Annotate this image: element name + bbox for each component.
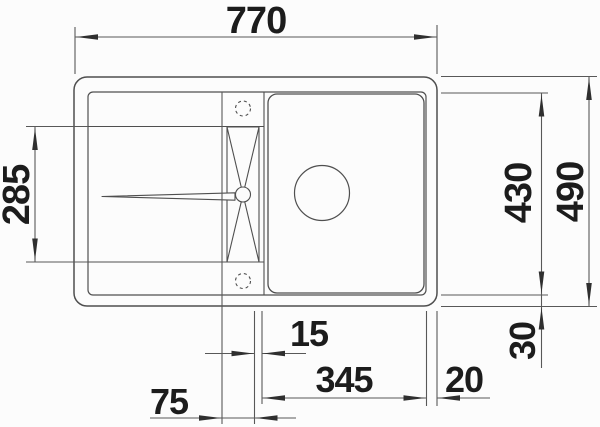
technical-drawing-canvas: 770 285 430 490 30 15 345 20 75 bbox=[0, 0, 600, 427]
dim-total-width-label: 770 bbox=[226, 0, 286, 42]
arrowhead-left bbox=[76, 34, 98, 40]
arrowhead-down bbox=[539, 272, 545, 294]
sink-body bbox=[74, 77, 437, 306]
divider-center-hole bbox=[236, 187, 251, 202]
dimension-linework bbox=[26, 25, 597, 424]
sink-outer-rim bbox=[74, 77, 437, 306]
sink-inner-edge bbox=[88, 92, 426, 295]
dim-side-edge-offset-label: 20 bbox=[445, 359, 483, 400]
arrowhead-right bbox=[404, 395, 426, 401]
sink-dimension-drawing: 770 285 430 490 30 15 345 20 75 bbox=[0, 0, 600, 427]
dim-divider-gap-label: 15 bbox=[290, 313, 329, 354]
dim-drainboard-depth-label: 285 bbox=[0, 164, 38, 225]
tap-hole-top bbox=[236, 101, 251, 116]
tap-hole-bottom bbox=[236, 274, 251, 289]
arrowhead-left bbox=[263, 351, 285, 357]
dim-rear-edge-offset-label: 30 bbox=[502, 322, 543, 360]
dimension-labels: 770 285 430 490 30 15 345 20 75 bbox=[0, 0, 592, 422]
arrowhead-left bbox=[256, 415, 278, 421]
dimension-tap-section-width bbox=[150, 92, 296, 424]
arrowhead-up bbox=[539, 95, 545, 117]
drain-groove bbox=[102, 193, 235, 200]
arrowhead-right bbox=[414, 34, 436, 40]
dim-tap-section-width-label: 75 bbox=[150, 381, 189, 422]
arrowhead-down bbox=[586, 283, 592, 305]
arrowhead-right bbox=[199, 415, 221, 421]
drain-circle bbox=[295, 166, 350, 221]
arrowhead-up bbox=[32, 128, 38, 150]
dim-bowl-section-width-label: 345 bbox=[315, 359, 373, 400]
arrowhead-up bbox=[586, 78, 592, 100]
arrowhead-left bbox=[263, 395, 285, 401]
arrowhead-down bbox=[32, 239, 38, 261]
dim-inner-depth-label: 430 bbox=[498, 163, 540, 223]
arrowhead-right bbox=[232, 351, 254, 357]
dim-total-depth-label: 490 bbox=[550, 162, 592, 222]
bowl-outline bbox=[268, 94, 424, 293]
